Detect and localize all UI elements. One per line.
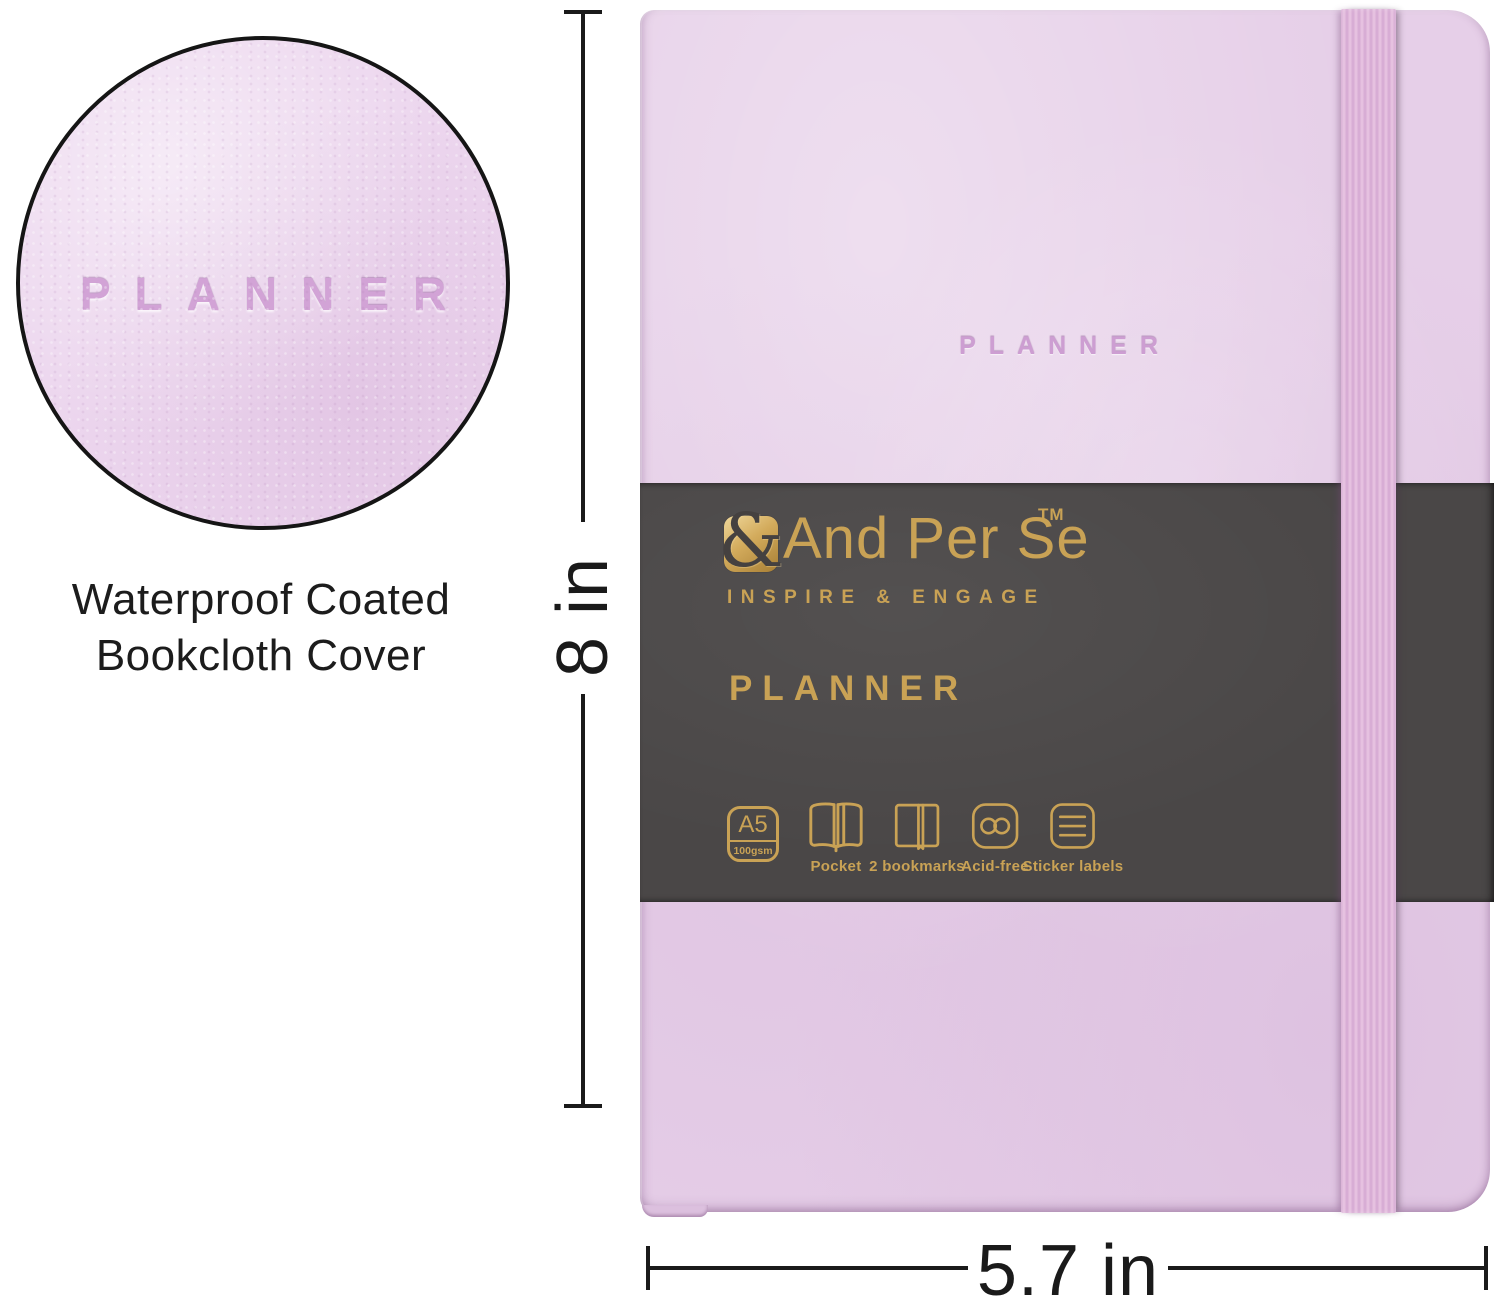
width-dim-line-left: [650, 1266, 968, 1270]
elastic-closure-band: [1341, 9, 1396, 1213]
acid-free-icon: [967, 793, 1023, 859]
height-dim-line-upper: [581, 10, 585, 522]
feature-label-sticker-labels: Sticker labels: [1023, 859, 1124, 875]
sticker-labels-icon: [1045, 793, 1101, 859]
two-bookmarks-icon: [888, 793, 946, 859]
width-dim-line-right: [1168, 1266, 1484, 1270]
feature-sticker-labels: Sticker labels: [1023, 793, 1124, 875]
height-dim-bottom-cap: [564, 1104, 602, 1108]
planner-notebook: PLANNER & And Per Se TM INSPIRE & ENGAGE…: [640, 10, 1490, 1212]
a5-size-label: A5: [730, 809, 776, 842]
cover-texture-detail-circle: PLANNER: [16, 36, 510, 530]
feature-label-pocket: Pocket: [811, 859, 862, 875]
feature-acid-free: Acid-free: [961, 793, 1029, 875]
width-dim-right-cap: [1484, 1246, 1488, 1290]
detail-caption-line2: Bookcloth Cover: [8, 628, 514, 684]
a5-size-icon: A5 100gsm: [727, 793, 779, 875]
notebook-bottom-page-curl: [642, 1205, 708, 1217]
detail-caption: Waterproof Coated Bookcloth Cover: [8, 572, 514, 685]
feature-pocket: Pocket: [805, 793, 867, 875]
feature-two-bookmarks: 2 bookmarks: [869, 793, 965, 875]
pocket-icon: [805, 793, 867, 859]
embossed-planner-text-detail: PLANNER: [80, 267, 470, 321]
feature-label-bookmarks: 2 bookmarks: [869, 859, 965, 875]
paper-weight-label: 100gsm: [730, 842, 776, 859]
detail-caption-line1: Waterproof Coated: [8, 572, 514, 628]
product-image-page: { "detail_view": { "embossed_text": "PLA…: [0, 0, 1500, 1303]
feature-a5-size: A5 100gsm: [727, 793, 779, 875]
height-dim-line-lower: [581, 694, 585, 1106]
width-dim-label: 5.7 in: [948, 1230, 1188, 1312]
feature-label-acid-free: Acid-free: [961, 859, 1029, 875]
